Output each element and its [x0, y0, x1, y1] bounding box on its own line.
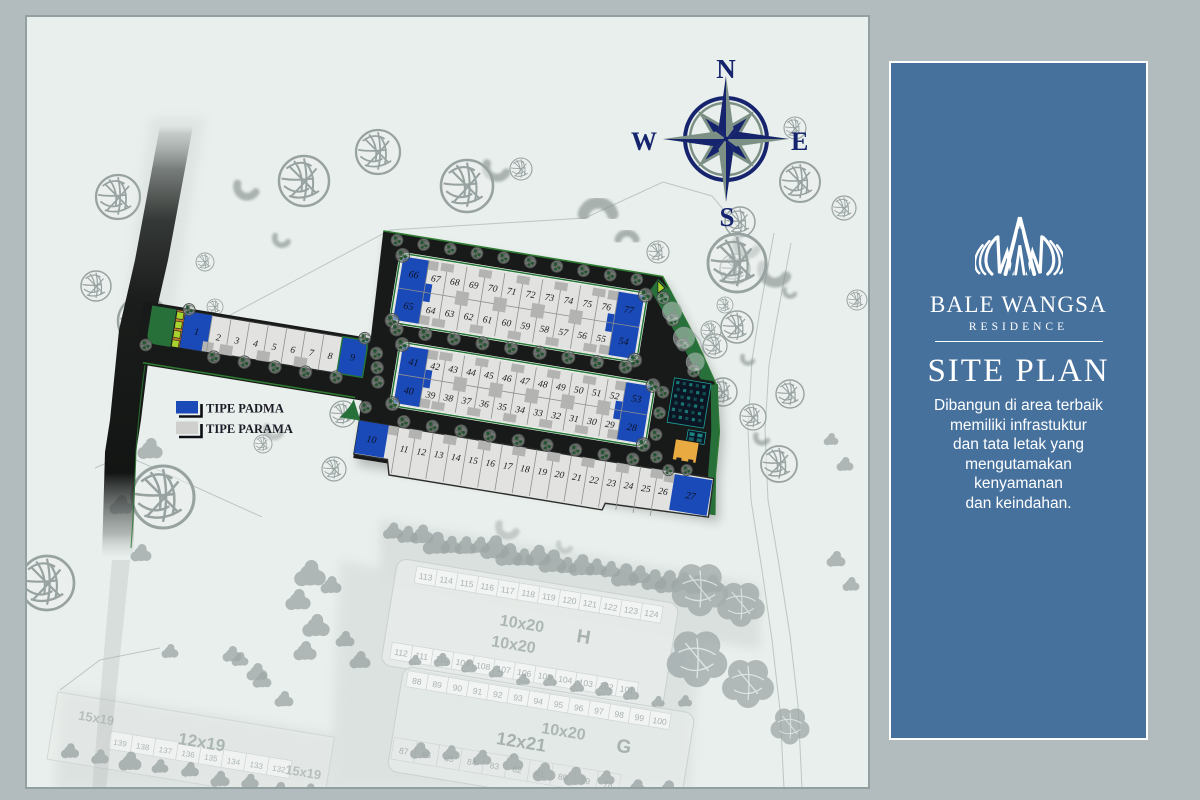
svg-text:20: 20: [554, 470, 565, 481]
svg-text:76: 76: [601, 302, 612, 313]
svg-text:53: 53: [631, 393, 643, 405]
svg-text:52: 52: [609, 391, 620, 402]
svg-text:46: 46: [501, 374, 512, 385]
svg-text:S: S: [719, 202, 734, 232]
svg-text:97: 97: [593, 705, 604, 716]
svg-text:N: N: [716, 54, 736, 84]
svg-text:23: 23: [606, 478, 617, 489]
svg-text:90: 90: [452, 682, 463, 693]
svg-text:TIPE PARAMA: TIPE PARAMA: [206, 422, 293, 436]
svg-text:21: 21: [571, 473, 582, 484]
svg-text:25: 25: [640, 484, 651, 495]
svg-text:66: 66: [408, 269, 420, 281]
svg-text:19: 19: [537, 467, 548, 478]
svg-text:74: 74: [563, 296, 574, 307]
svg-text:89: 89: [432, 679, 443, 690]
svg-text:W: W: [631, 127, 657, 156]
svg-text:48: 48: [537, 379, 548, 390]
svg-text:96: 96: [573, 702, 584, 713]
svg-text:99: 99: [634, 712, 645, 723]
svg-text:71: 71: [506, 287, 517, 298]
svg-text:15: 15: [468, 456, 479, 467]
svg-text:45: 45: [483, 371, 494, 382]
svg-text:73: 73: [544, 293, 555, 304]
svg-text:63: 63: [444, 309, 455, 320]
svg-text:60: 60: [501, 318, 512, 329]
svg-text:64: 64: [425, 306, 436, 317]
svg-text:E: E: [791, 127, 808, 156]
svg-text:11: 11: [399, 444, 409, 455]
svg-text:33: 33: [532, 408, 544, 420]
svg-text:61: 61: [482, 315, 493, 326]
svg-text:50: 50: [573, 385, 584, 396]
svg-text:75: 75: [582, 299, 593, 310]
svg-text:55: 55: [596, 334, 607, 345]
svg-text:58: 58: [539, 324, 550, 335]
svg-text:44: 44: [465, 368, 476, 379]
svg-text:93: 93: [513, 692, 524, 703]
svg-text:65: 65: [403, 301, 415, 313]
svg-text:72: 72: [525, 290, 536, 301]
svg-text:12: 12: [416, 447, 427, 458]
svg-text:10: 10: [366, 434, 378, 446]
svg-text:35: 35: [496, 402, 508, 414]
svg-text:88: 88: [411, 676, 422, 687]
svg-text:TIPE PADMA: TIPE PADMA: [206, 402, 284, 416]
svg-text:28: 28: [626, 422, 638, 434]
svg-text:98: 98: [614, 709, 625, 720]
svg-text:24: 24: [623, 481, 634, 492]
svg-text:95: 95: [553, 699, 564, 710]
svg-text:59: 59: [520, 321, 531, 332]
svg-text:92: 92: [492, 689, 503, 700]
svg-text:39: 39: [424, 390, 436, 402]
svg-text:49: 49: [555, 382, 566, 393]
svg-text:87: 87: [398, 745, 409, 756]
svg-text:56: 56: [577, 331, 588, 342]
svg-text:14: 14: [450, 453, 461, 464]
svg-text:91: 91: [472, 686, 483, 697]
svg-text:29: 29: [604, 420, 615, 431]
svg-text:62: 62: [463, 312, 474, 323]
svg-text:42: 42: [430, 362, 441, 373]
svg-text:68: 68: [449, 277, 460, 288]
svg-text:94: 94: [533, 695, 544, 706]
svg-text:26: 26: [657, 487, 668, 498]
svg-text:40: 40: [403, 385, 415, 397]
svg-text:69: 69: [468, 280, 479, 291]
svg-text:16: 16: [485, 458, 496, 469]
svg-text:31: 31: [567, 414, 579, 426]
svg-text:51: 51: [591, 388, 602, 399]
svg-text:43: 43: [448, 365, 459, 376]
svg-text:41: 41: [408, 357, 420, 369]
svg-text:18: 18: [519, 464, 530, 475]
svg-text:70: 70: [487, 284, 498, 295]
svg-text:13: 13: [433, 450, 444, 461]
svg-text:54: 54: [618, 336, 630, 348]
svg-text:22: 22: [588, 475, 599, 486]
